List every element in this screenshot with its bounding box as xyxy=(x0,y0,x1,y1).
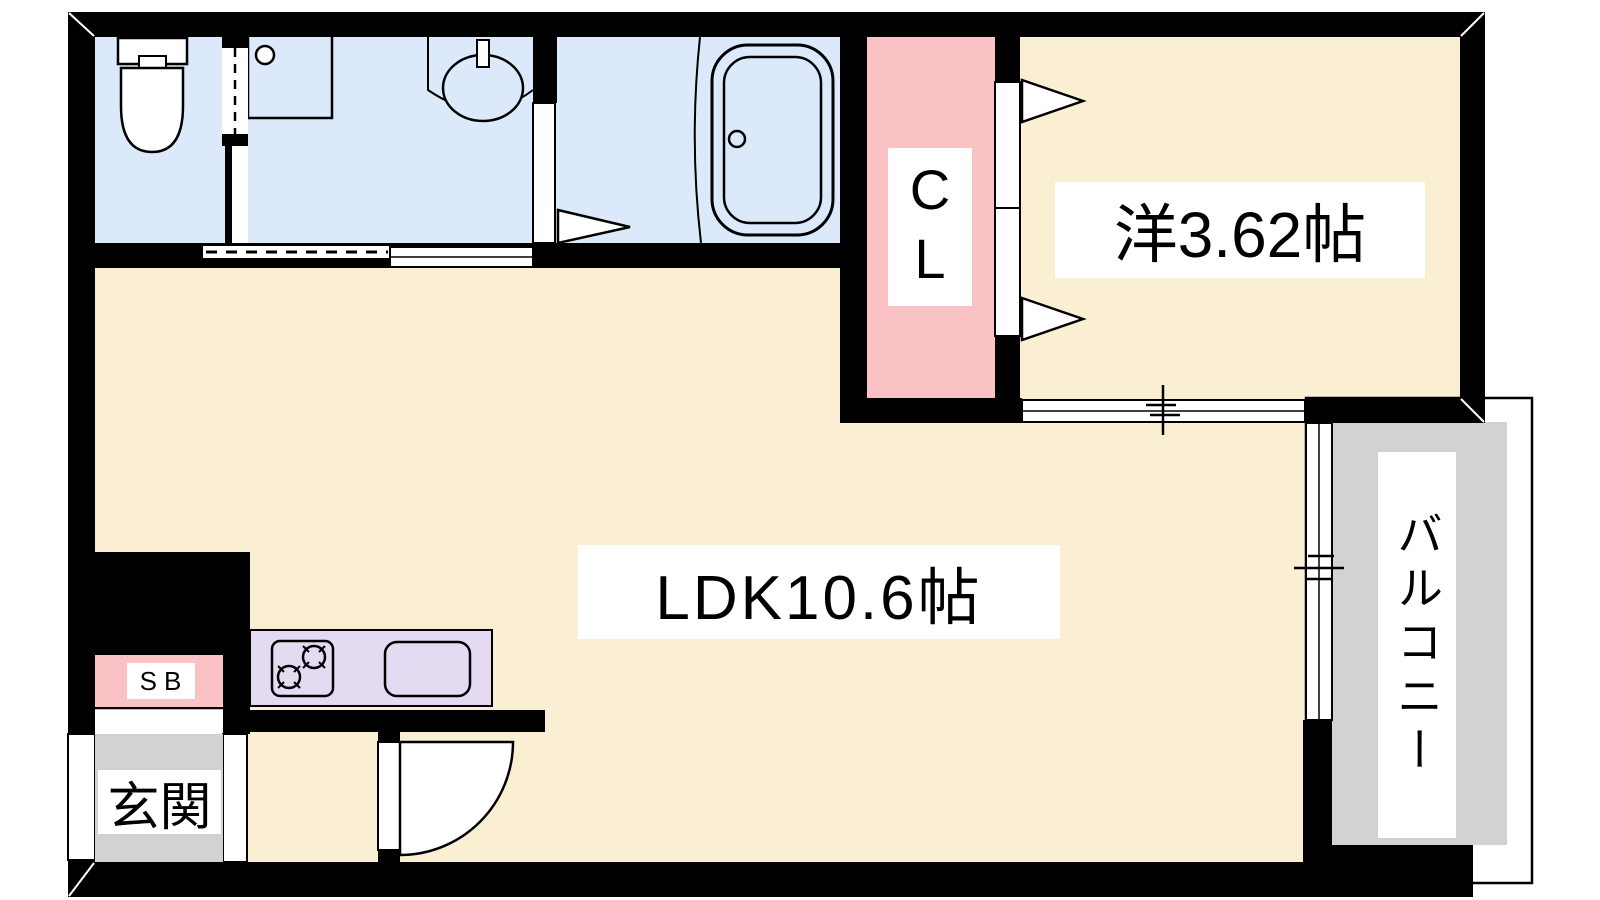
balcony-label: バルコニー xyxy=(1384,510,1450,780)
closet-label: CL xyxy=(898,158,963,296)
wall xyxy=(1303,720,1332,862)
wall xyxy=(378,732,400,742)
entrance-opening xyxy=(223,734,247,862)
shoe-box-label: SB xyxy=(140,666,189,697)
entrance-label-box: 玄関 xyxy=(98,770,221,834)
ldk-label: LDK10.6帖 xyxy=(655,547,982,637)
kitchen xyxy=(250,630,492,706)
balcony-label-box: バルコニー xyxy=(1378,452,1456,838)
entrance-label: 玄関 xyxy=(107,765,211,840)
wc-partition-gap xyxy=(232,146,248,243)
bath-door xyxy=(533,103,555,243)
wall xyxy=(223,710,545,732)
wall xyxy=(1305,398,1483,423)
front-door-opening xyxy=(68,734,95,860)
wall xyxy=(995,336,1020,413)
wall xyxy=(840,35,867,423)
western-room-label-box: 洋3.62帖 xyxy=(1055,182,1425,278)
western-room-label: 洋3.62帖 xyxy=(1114,184,1367,276)
ldk-label-box: LDK10.6帖 xyxy=(578,545,1060,639)
shoe-box-label-box: SB xyxy=(127,663,195,699)
wall xyxy=(840,398,1022,423)
wall xyxy=(378,850,400,862)
toilet-icon xyxy=(118,38,187,152)
floor-plan: 洋3.62帖 LDK10.6帖 CL SB 玄関 バルコニー xyxy=(0,0,1600,900)
entrance-step xyxy=(95,707,223,734)
wc-door xyxy=(222,48,248,134)
wall xyxy=(225,146,232,243)
wall xyxy=(222,35,248,48)
closet-label-box: CL xyxy=(888,148,972,306)
wall xyxy=(533,35,557,103)
wall xyxy=(995,37,1020,82)
wall xyxy=(68,12,1485,37)
wall xyxy=(68,552,250,655)
wall xyxy=(1330,845,1473,897)
wall xyxy=(68,862,1473,897)
ldk-door-jamb xyxy=(378,742,400,850)
floorplan-svg xyxy=(0,0,1600,900)
wall xyxy=(222,134,248,146)
wall xyxy=(1460,12,1485,423)
